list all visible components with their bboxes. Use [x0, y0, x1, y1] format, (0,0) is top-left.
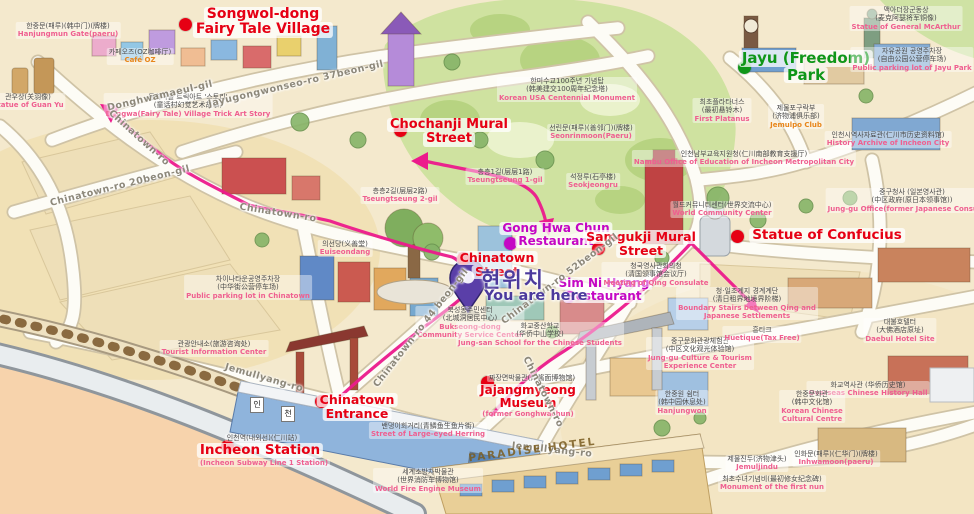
poi-label-statue-of-confucius: Statue of Confucius [749, 228, 905, 243]
station-sign-0: 인 [250, 397, 264, 413]
you-are-here-english: You are here [484, 288, 587, 304]
place-seonrinmoon-label: 선린문(패루)(善邻门)(牌楼)Seonrinmoon(Paeru) [547, 124, 635, 141]
road-label-8-jemullyang-ro: Jemullyang-ro [224, 362, 305, 395]
place-tseungtseung-2-gil-label: 층층2길(层层2路)Tseungtseung 2-gil [361, 187, 440, 204]
place-incheon-station-sub-label: (Incheon Subway Line 1 Station) [198, 459, 330, 467]
poi-dot-statue-of-confucius [731, 230, 744, 243]
place-monument-of-the-first-nun-label: 최초수녀기념비(最初修女纪念碑)Monument of the first nu… [718, 475, 826, 492]
road-label-3-chinatown-ro-20beon-gil: Chinatown-ro 20beon-gil [49, 163, 191, 208]
place-jung-gu-office-label: 중구청사 (일본영사관)(中区政府(原日本领事馆))Jung-gu Office… [826, 188, 974, 213]
place-statue-of-guan-yu-label: 관우상(关羽像)Statue of Guan Yu [0, 93, 66, 110]
place-jemuljindu-label: 제물진두(济物津头)Jemuljindu [725, 455, 788, 472]
poi-label-chochanji-mural-street: Chochanji MuralStreet [387, 118, 511, 147]
place-jayu-park-parking-label: 자유공원 공영주차장(自由公园公营停车场)Public parking lot … [850, 47, 973, 72]
road-label-4-chinatown-ro: Chinatown-ro [239, 201, 318, 224]
place-jung-san-school-label: 화교중산학교(华侨中山学校)Jung-san School for the Ch… [456, 322, 624, 347]
place-korean-usa-centennial-monument-label: 한미수교100주년 기념탑(韩美建交100周年纪念塔)Korean USA Ce… [497, 77, 637, 102]
place-first-platanus-label: 최초플라타너스(最初悬铃木)First Platanus [692, 98, 751, 123]
place-meeting-of-qing-consulate-label: 청국영사관회의청(清国领事馆会议厅)Meeting of Qing Consul… [601, 262, 710, 287]
place-inhwamoon-label: 인화문(패루)(仁华门)(牌楼)Inhwamoon(paeru) [792, 450, 880, 467]
place-daebul-hotel-site-label: 대불호텔터(大佛酒店原址)Daebul Hotel Site [863, 318, 936, 343]
place-seokjeongru-label: 석정루(石亭楼)Seokjeongru [566, 173, 620, 190]
place-statue-of-general-mcarthur-label: 맥아더장군동상(麦克阿瑟将军铜像)Statue of General McArt… [850, 6, 963, 31]
poi-label-chinatown-entrance: ChinatownEntrance [317, 393, 398, 421]
chinatown-tour-map: Songwol-dongFairy Tale VillageJayu (Free… [0, 0, 974, 514]
place-incheon-station-ko-label: 인천역(내외선)(仁川站) [225, 434, 300, 442]
place-world-fire-engine-museum-label: 세계소방차박물관(世界消防车博物馆)World Fire Engine Muse… [373, 468, 483, 493]
place-chinatown-public-parking-label: 차이나타운공영주차장(中华街公营停车场)Public parking lot i… [184, 275, 312, 300]
place-tseungtseung-1-gil-label: 층층1길(层层1路)Tseungtseung 1-gil [466, 168, 545, 185]
place-history-archive-of-incheon-city-label: 인천시역사자료관(仁川市历史资料馆)History Archive of Inc… [825, 131, 952, 148]
place-jemulpo-club-label: 제물포구락부(济物浦俱乐部)Jemulpo Club [768, 104, 824, 129]
place-cafe-oz-label: 카페오즈(OZ咖啡厅)Café OZ [107, 48, 174, 65]
poi-label-incheon-station: Incheon Station [197, 443, 323, 458]
place-euiseondang-label: 의선당(义善堂)Euiseondang [318, 240, 373, 257]
poi-label-jajangmyeong-museum: JajangmyeongMuseum [477, 384, 579, 410]
road-label-1-jayugongwonseo-ro-37beon-gil: Jayugongwonseo-ro 37beon-gil [207, 58, 385, 109]
place-street-of-large-eyed-herring-label: 밴댕이회거리(青鳞鱼生鱼片街)Street of Large-eyed Herr… [369, 422, 487, 439]
place-boundary-stairs-label: 청·일조계지 경계계단(清日租界地境界阶梯)Boundary Stairs be… [676, 287, 818, 320]
place-hanjungwon-label: 한중원 쉼터(韩中园休息处)Hanjungwon [655, 390, 708, 415]
poi-dot-songwol-dong-fairy-tale-village [179, 18, 192, 31]
poi-label-songwol-dong-fairy-tale-village: Songwol-dongFairy Tale Village [193, 7, 333, 38]
place-hanjungmun-gate-label: 한중문(패루)(韩中门)(牌楼)Hanjungmun Gate(paeru) [16, 22, 121, 39]
place-korean-chinese-cultural-centre-label: 한중문화관(韩中文化馆)Korean ChineseCultural Centr… [779, 390, 845, 423]
station-sign-1: 천 [281, 406, 295, 422]
place-huetique-tax-free-label: 흥티크Huetique(Tax Free) [722, 326, 801, 343]
place-world-community-center-label: 월드커뮤니티센터(世界交流中心)World Community Center [670, 201, 773, 218]
place-nambu-office-of-education-label: 인천남부교육지원청(仁川南部教育支援厅)Nambu Office of Educ… [632, 150, 856, 167]
place-tourist-information-center-label: 관광안내소(旅游咨询处)Tourist Information Center [160, 340, 269, 357]
map-labels-layer: Songwol-dongFairy Tale VillageJayu (Free… [0, 0, 974, 514]
